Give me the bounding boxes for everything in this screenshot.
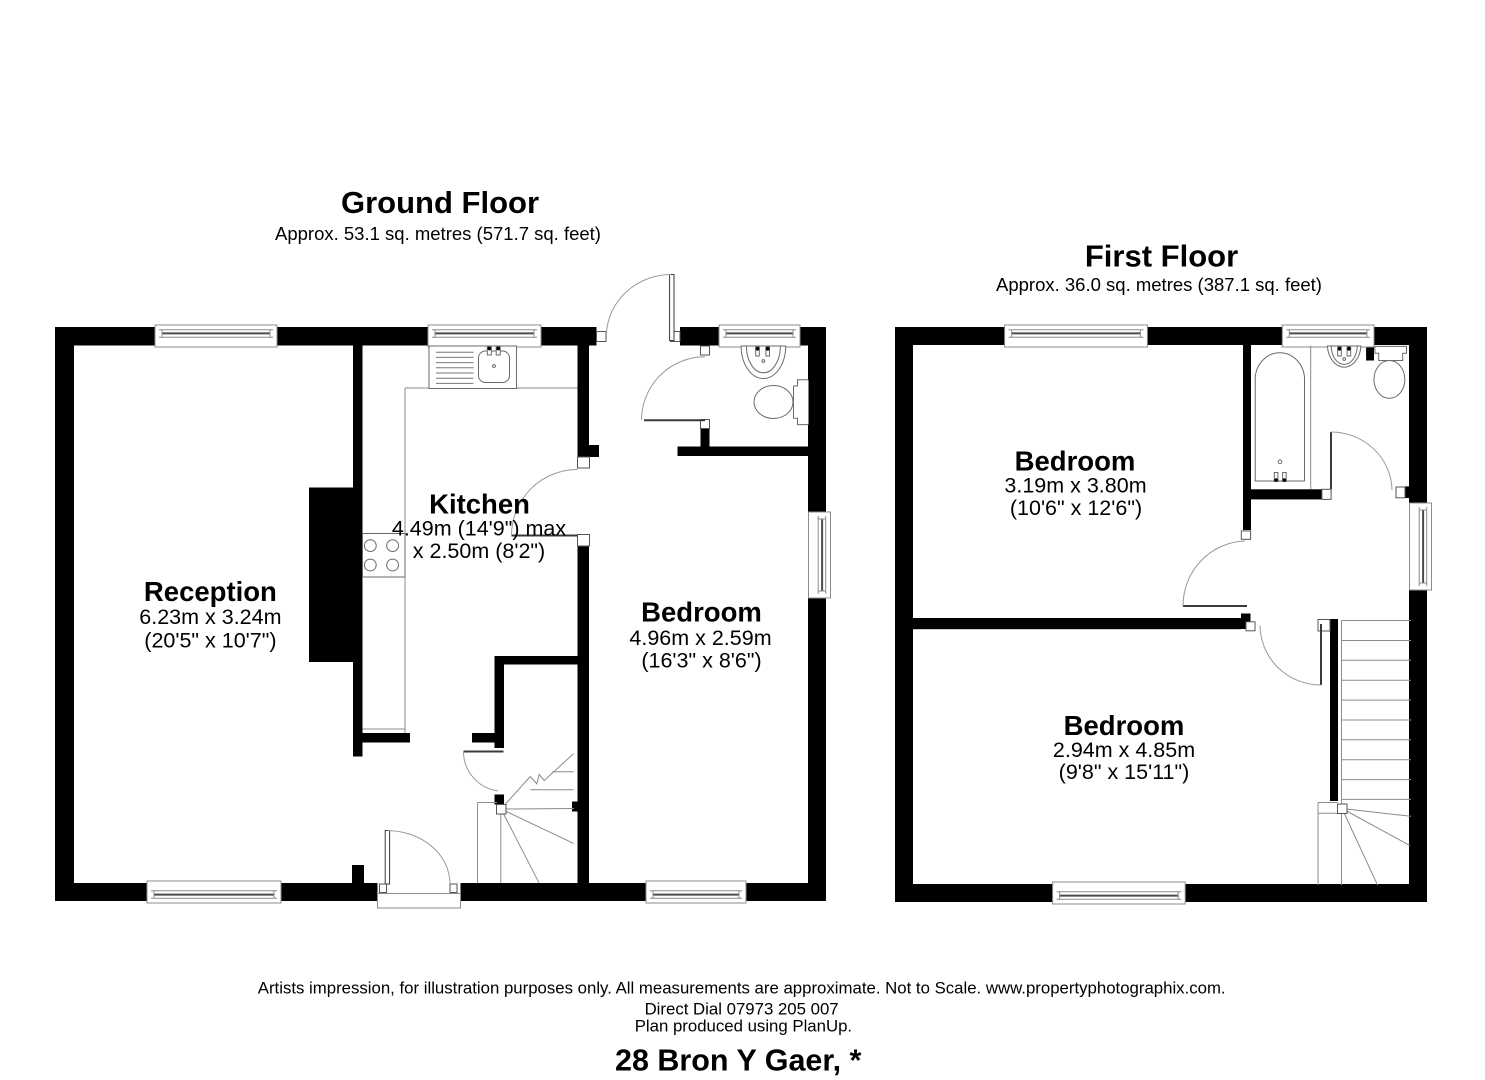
- svg-text:4.49m (14'9") max: 4.49m (14'9") max: [392, 517, 566, 541]
- svg-text:28 Bron Y Gaer, *: 28 Bron Y Gaer, *: [615, 1044, 862, 1078]
- svg-text:Artists impression, for illust: Artists impression, for illustration pur…: [258, 979, 1226, 998]
- svg-text:x 2.50m (8'2"): x 2.50m (8'2"): [413, 539, 545, 563]
- svg-text:Reception: Reception: [144, 576, 277, 607]
- svg-text:(20'5" x 10'7"): (20'5" x 10'7"): [144, 629, 276, 653]
- svg-text:6.23m x 3.24m: 6.23m x 3.24m: [139, 605, 281, 629]
- svg-text:Kitchen: Kitchen: [429, 489, 530, 520]
- svg-text:Bedroom: Bedroom: [1015, 446, 1136, 477]
- svg-text:Ground Floor: Ground Floor: [341, 185, 539, 220]
- svg-text:3.19m x 3.80m: 3.19m x 3.80m: [1004, 474, 1146, 498]
- svg-text:(9'8" x 15'11"): (9'8" x 15'11"): [1059, 760, 1190, 784]
- svg-text:Approx. 53.1 sq. metres (571.7: Approx. 53.1 sq. metres (571.7 sq. feet): [275, 223, 601, 244]
- svg-text:Approx. 36.0 sq. metres (387.1: Approx. 36.0 sq. metres (387.1 sq. feet): [996, 274, 1322, 295]
- svg-text:(16'3" x 8'6"): (16'3" x 8'6"): [641, 649, 761, 673]
- svg-text:4.96m x 2.59m: 4.96m x 2.59m: [629, 626, 771, 650]
- svg-text:First Floor: First Floor: [1085, 239, 1238, 274]
- svg-text:(10'6" x 12'6"): (10'6" x 12'6"): [1010, 496, 1142, 520]
- svg-text:Bedroom: Bedroom: [1064, 710, 1185, 741]
- svg-text:Bedroom: Bedroom: [641, 597, 762, 628]
- svg-text:Plan produced using PlanUp.: Plan produced using PlanUp.: [635, 1017, 852, 1036]
- svg-text:2.94m x 4.85m: 2.94m x 4.85m: [1053, 738, 1195, 762]
